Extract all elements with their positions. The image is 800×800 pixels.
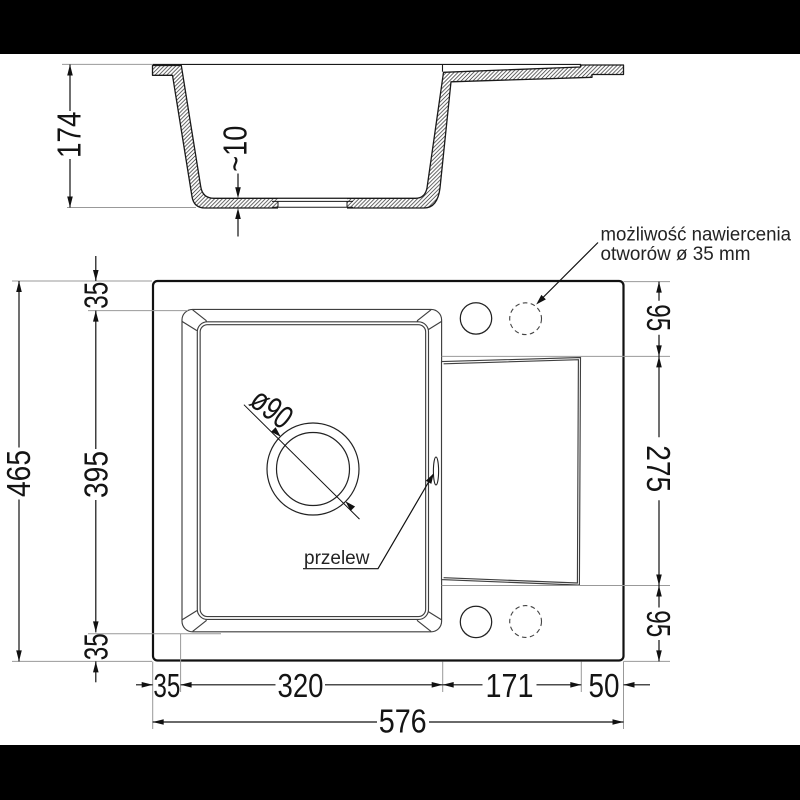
svg-text:174: 174	[51, 112, 88, 159]
svg-text:35: 35	[77, 633, 114, 660]
svg-text:35: 35	[77, 282, 114, 309]
svg-text:576: 576	[379, 702, 427, 739]
svg-text:otworów ø 35 mm: otworów ø 35 mm	[601, 244, 751, 265]
svg-text:320: 320	[278, 667, 324, 704]
svg-text:395: 395	[77, 451, 114, 498]
svg-text:95: 95	[640, 610, 677, 637]
svg-text:95: 95	[640, 304, 677, 331]
svg-text:~10: ~10	[217, 126, 254, 172]
svg-text:171: 171	[486, 667, 534, 704]
svg-text:50: 50	[589, 667, 620, 704]
svg-text:275: 275	[640, 445, 677, 492]
svg-text:465: 465	[0, 450, 37, 497]
svg-text:możliwość nawiercenia: możliwość nawiercenia	[601, 225, 792, 246]
svg-text:przelew: przelew	[304, 548, 370, 569]
svg-text:35: 35	[153, 667, 180, 704]
